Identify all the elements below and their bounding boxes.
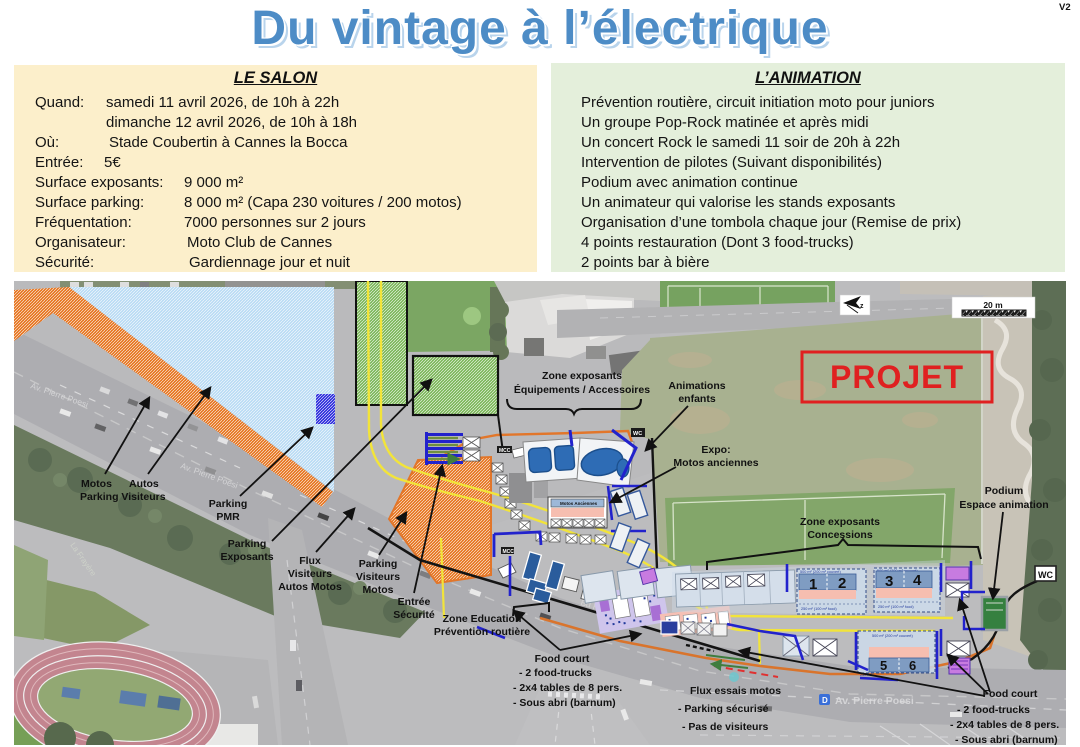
svg-text:- Sous abri (barnum): - Sous abri (barnum) — [955, 734, 1058, 745]
svg-text:PROJET: PROJET — [830, 359, 964, 395]
svg-text:Podium: Podium — [985, 485, 1024, 497]
svg-text:250 m² (100 m² food): 250 m² (100 m² food) — [878, 605, 914, 609]
svg-text:Sécurité: Sécurité — [393, 609, 435, 621]
svg-text:5: 5 — [880, 658, 887, 673]
svg-text:WC: WC — [1038, 570, 1053, 580]
svg-text:MCC: MCC — [499, 448, 511, 454]
svg-text:- 2x4 tables de 8 pers.: - 2x4 tables de 8 pers. — [950, 719, 1059, 731]
svg-text:500 m² (200 m² couvert): 500 m² (200 m² couvert) — [872, 634, 913, 638]
svg-text:Parking: Parking — [209, 498, 248, 510]
svg-text:- Parking sécurisé: - Parking sécurisé — [678, 703, 769, 715]
svg-text:Parking Visiteurs: Parking Visiteurs — [80, 491, 166, 503]
svg-text:Zone exposants: Zone exposants — [542, 370, 622, 382]
svg-text:500 m² (200 m² couvert): 500 m² (200 m² couvert) — [800, 570, 841, 574]
svg-text:Prévention routière: Prévention routière — [434, 626, 530, 638]
svg-text:Exposants: Exposants — [220, 551, 273, 563]
svg-text:Autos Motos: Autos Motos — [278, 581, 342, 593]
svg-text:Autos: Autos — [129, 478, 159, 490]
svg-text:- 2 food-trucks: - 2 food-trucks — [957, 704, 1030, 716]
svg-text:- 2x4 tables de 8 pers.: - 2x4 tables de 8 pers. — [513, 682, 622, 694]
svg-text:Animations: Animations — [668, 380, 725, 392]
svg-text:Av. Pierre Poesi: Av. Pierre Poesi — [835, 695, 914, 707]
svg-text:Motos: Motos — [81, 478, 112, 490]
svg-text:Flux essais motos: Flux essais motos — [690, 685, 781, 697]
svg-text:enfants: enfants — [678, 393, 716, 405]
svg-text:- Sous abri (barnum): - Sous abri (barnum) — [513, 697, 616, 709]
svg-text:4: 4 — [913, 572, 922, 589]
svg-text:6: 6 — [909, 658, 916, 673]
svg-text:Espace animation: Espace animation — [959, 499, 1048, 511]
svg-text:- Pas de visiteurs: - Pas de visiteurs — [682, 721, 769, 733]
svg-text:Food court: Food court — [983, 688, 1038, 700]
svg-text:Expo:: Expo: — [701, 444, 730, 456]
svg-text:WC: WC — [633, 431, 642, 437]
svg-text:Food court: Food court — [535, 653, 590, 665]
svg-text:Concessions: Concessions — [807, 529, 873, 541]
svg-text:250 m² (100 m² food): 250 m² (100 m² food) — [801, 607, 837, 611]
svg-text:Motos: Motos — [363, 584, 394, 596]
svg-text:Zone exposants: Zone exposants — [800, 516, 880, 528]
svg-text:Flux: Flux — [299, 555, 321, 567]
svg-text:3: 3 — [885, 573, 893, 590]
svg-text:PMR: PMR — [216, 511, 240, 523]
svg-text:20 m: 20 m — [983, 300, 1003, 310]
svg-text:Entrée: Entrée — [398, 596, 431, 608]
svg-text:- 2 food-trucks: - 2 food-trucks — [519, 667, 592, 679]
svg-text:Zone Education: Zone Education — [443, 613, 522, 625]
svg-text:MCC: MCC — [503, 549, 515, 555]
svg-text:Visiteurs: Visiteurs — [356, 571, 400, 583]
svg-text:2: 2 — [838, 575, 846, 592]
svg-text:Motos Anciennes: Motos Anciennes — [560, 501, 598, 506]
svg-text:z: z — [860, 303, 864, 310]
svg-text:Visiteurs: Visiteurs — [288, 568, 332, 580]
svg-text:Équipements / Accessoires: Équipements / Accessoires — [514, 383, 650, 396]
svg-text:Parking: Parking — [359, 558, 398, 570]
svg-text:Motos anciennes: Motos anciennes — [673, 457, 758, 469]
svg-text:Parking: Parking — [228, 538, 267, 550]
svg-text:D: D — [822, 696, 828, 705]
